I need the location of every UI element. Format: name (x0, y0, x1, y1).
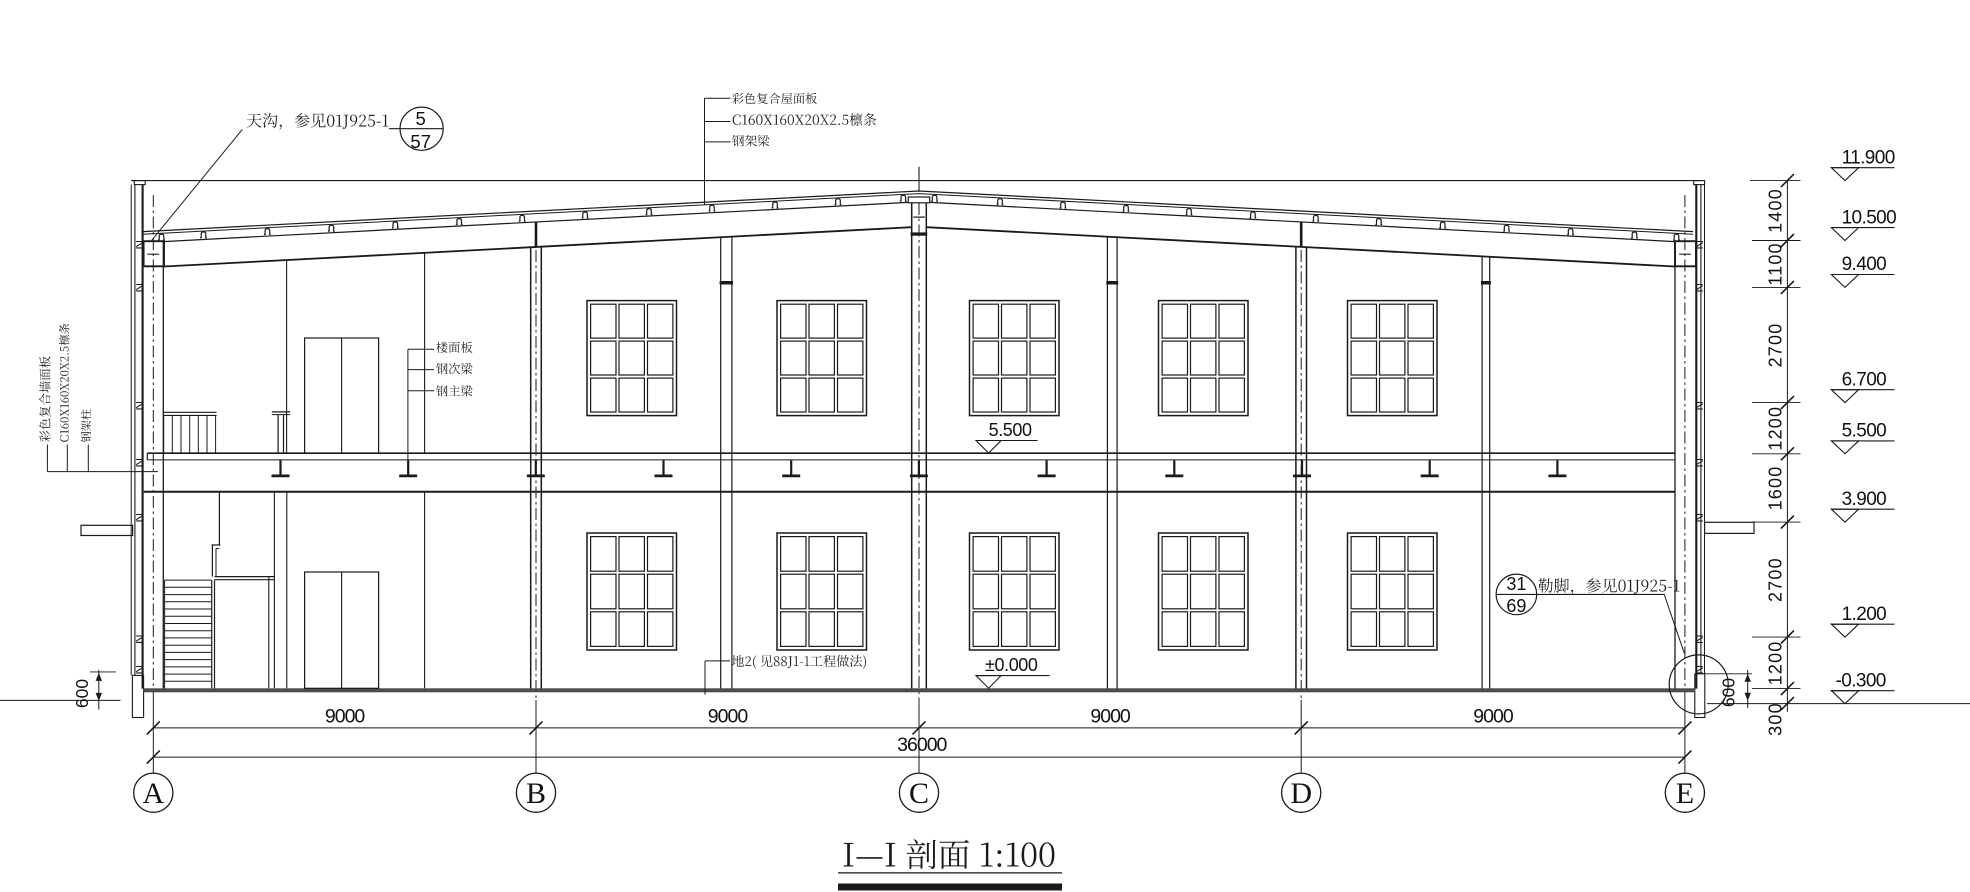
svg-text:9000: 9000 (1090, 706, 1131, 728)
svg-text:2700: 2700 (1765, 557, 1785, 602)
svg-text:±0.000: ±0.000 (985, 655, 1038, 675)
svg-text:5.500: 5.500 (1842, 421, 1887, 442)
svg-text:2700: 2700 (1765, 323, 1785, 368)
svg-text:B: B (526, 777, 546, 810)
svg-text:31: 31 (1506, 574, 1526, 594)
svg-text:300: 300 (1765, 702, 1785, 736)
svg-text:C: C (909, 777, 929, 810)
svg-text:5: 5 (416, 108, 426, 129)
svg-text:9000: 9000 (708, 706, 749, 728)
svg-text:69: 69 (1506, 596, 1526, 616)
svg-text:1.200: 1.200 (1842, 604, 1887, 625)
svg-text:11.900: 11.900 (1842, 147, 1895, 168)
svg-text:36000: 36000 (897, 734, 947, 756)
svg-text:1200: 1200 (1765, 640, 1785, 685)
svg-text:5.500: 5.500 (989, 420, 1032, 440)
svg-text:57: 57 (410, 131, 431, 152)
svg-text:-0.300: -0.300 (1836, 670, 1886, 691)
svg-text:600: 600 (72, 679, 92, 708)
svg-text:1200: 1200 (1765, 406, 1785, 451)
svg-text:D: D (1290, 777, 1312, 810)
svg-text:3.900: 3.900 (1842, 489, 1887, 510)
svg-text:1400: 1400 (1765, 188, 1785, 233)
svg-text:1100: 1100 (1765, 242, 1785, 286)
svg-text:6.700: 6.700 (1842, 369, 1887, 390)
svg-text:10.500: 10.500 (1842, 207, 1897, 228)
svg-text:9000: 9000 (1473, 706, 1514, 728)
svg-text:1600: 1600 (1765, 466, 1785, 511)
svg-text:A: A (142, 777, 164, 810)
svg-text:E: E (1676, 777, 1694, 810)
svg-text:9.400: 9.400 (1842, 254, 1887, 275)
svg-text:9000: 9000 (325, 706, 366, 728)
